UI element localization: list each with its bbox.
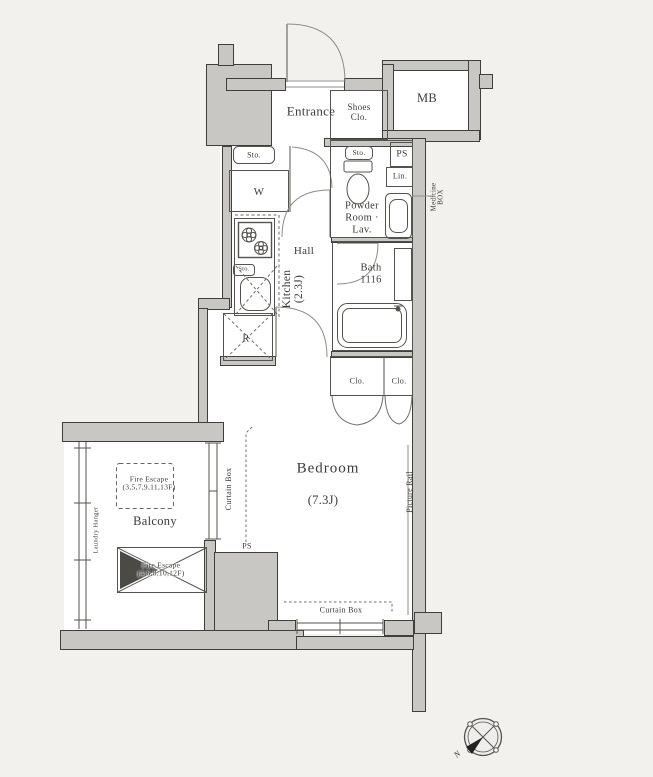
- label-powder-room: Powder Room · Lav.: [345, 200, 379, 235]
- closet-folding-doors-icon: [332, 396, 412, 425]
- label-fire-escape-upper: Fire Escape (3,5,7,9,11,13F): [122, 476, 175, 493]
- label-ps-bedroom: PS: [242, 543, 252, 552]
- label-balcony: Balcony: [133, 514, 177, 528]
- curtain-box-left-line: [246, 427, 252, 544]
- label-storage-powder: Sto.: [352, 149, 365, 157]
- label-curtain-box-bottom: Curtain Box: [320, 607, 363, 616]
- label-entrance: Entrance: [287, 105, 336, 120]
- west-window-icon: [205, 443, 221, 539]
- label-bedroom: Bedroom: [297, 461, 360, 478]
- label-closet-right: Clo.: [392, 378, 407, 387]
- label-refrigerator: R: [243, 333, 250, 344]
- label-medicine-box: Medicine BOX: [431, 183, 446, 212]
- compass-icon: [465, 719, 502, 756]
- bath-counter-outline: [395, 249, 412, 301]
- south-window-icon: [297, 619, 383, 634]
- label-closet-left: Clo.: [350, 378, 365, 387]
- label-washer: W: [254, 186, 265, 198]
- sink-icon: [241, 278, 271, 311]
- label-ps-shaft: PS: [396, 150, 407, 161]
- powder-door-icon: [282, 190, 330, 237]
- label-bath: Bath 1116: [360, 262, 381, 286]
- label-fire-escape-lower: Fire Escape (4,6,8,10,12F): [137, 562, 184, 579]
- label-shoes-closet: Shoes Clo.: [347, 102, 370, 122]
- label-curtain-box-left: Curtain Box: [225, 468, 233, 511]
- label-mb: MB: [417, 91, 437, 105]
- label-storage-kitchen: Sto.: [238, 265, 250, 272]
- entrance-door-icon: [286, 24, 345, 87]
- genkan-step-line: [292, 147, 332, 188]
- label-picture-rail: Picture Rail: [406, 471, 414, 513]
- label-kitchen: Kitchen (2.3J): [281, 270, 305, 309]
- label-bedroom-size: (7.3J): [308, 493, 339, 507]
- bathtub-icon: [338, 304, 407, 348]
- label-hall: Hall: [294, 245, 314, 257]
- washbasin-icon: [386, 194, 412, 239]
- toilet-icon: [344, 161, 372, 204]
- label-laundry-hanger: Laundry Hanger: [94, 507, 101, 554]
- label-linen: Lin.: [393, 173, 407, 182]
- stove-icon: [239, 223, 272, 258]
- floor-plan: Entrance Shoes Clo. MB Sto. W Sto. PS Li…: [0, 0, 653, 777]
- kitchen-door-icon: [276, 307, 327, 357]
- label-storage-entrance: Sto.: [247, 152, 261, 161]
- bath-outline: [333, 242, 413, 351]
- balcony-railing: [74, 442, 91, 629]
